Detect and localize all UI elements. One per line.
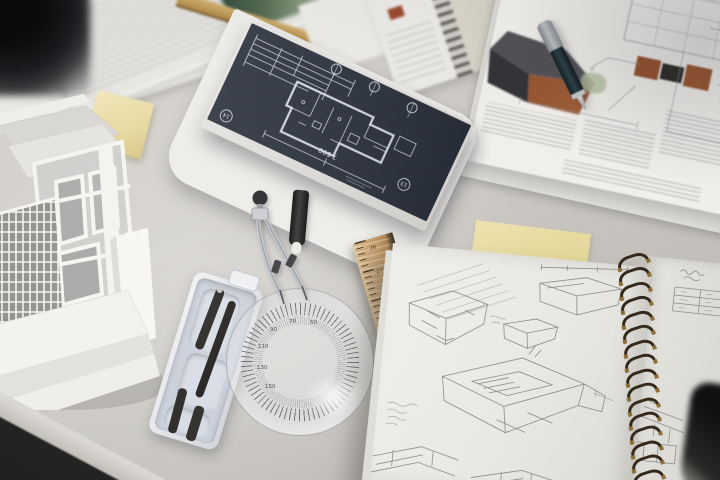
faint-drawing-lines bbox=[383, 15, 446, 83]
protractor-number: 110 bbox=[258, 345, 269, 351]
plastic-glare bbox=[304, 374, 366, 420]
drawing-compass bbox=[228, 184, 328, 316]
sketchbook-left-page bbox=[370, 243, 654, 480]
ruler-number: 26 bbox=[369, 245, 377, 252]
protractor-number: 50 bbox=[310, 321, 317, 327]
architectural-model bbox=[0, 86, 176, 410]
protractor-number: 150 bbox=[265, 385, 276, 391]
detail-drawing-mark bbox=[387, 5, 405, 20]
protractor-number: 70 bbox=[289, 320, 296, 326]
protractor-number: 130 bbox=[257, 366, 268, 372]
out-of-focus-object bbox=[0, 0, 90, 96]
protractor-number: 90 bbox=[270, 328, 277, 334]
pencil-sketch-lines bbox=[370, 243, 654, 480]
desk-scene: 7 500 14 13 bbox=[0, 0, 720, 480]
